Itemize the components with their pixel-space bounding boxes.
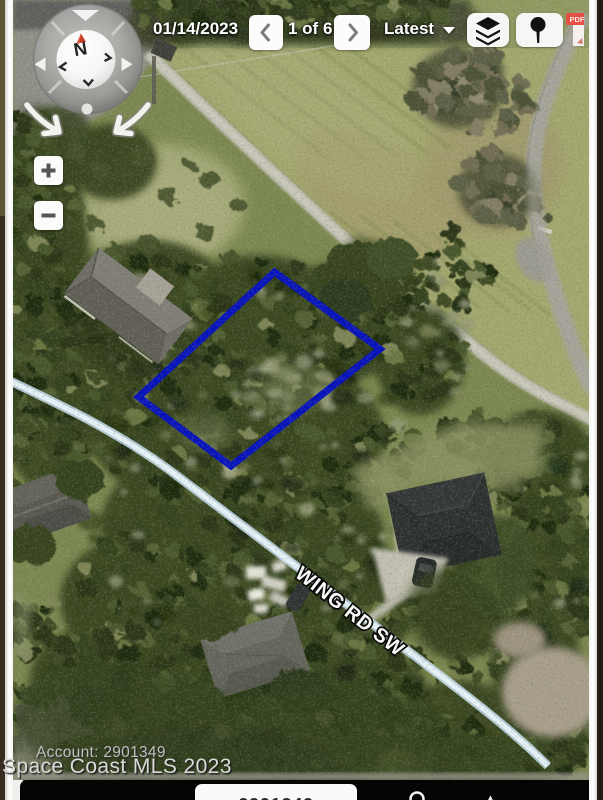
svg-text:PDF: PDF — [570, 15, 585, 24]
